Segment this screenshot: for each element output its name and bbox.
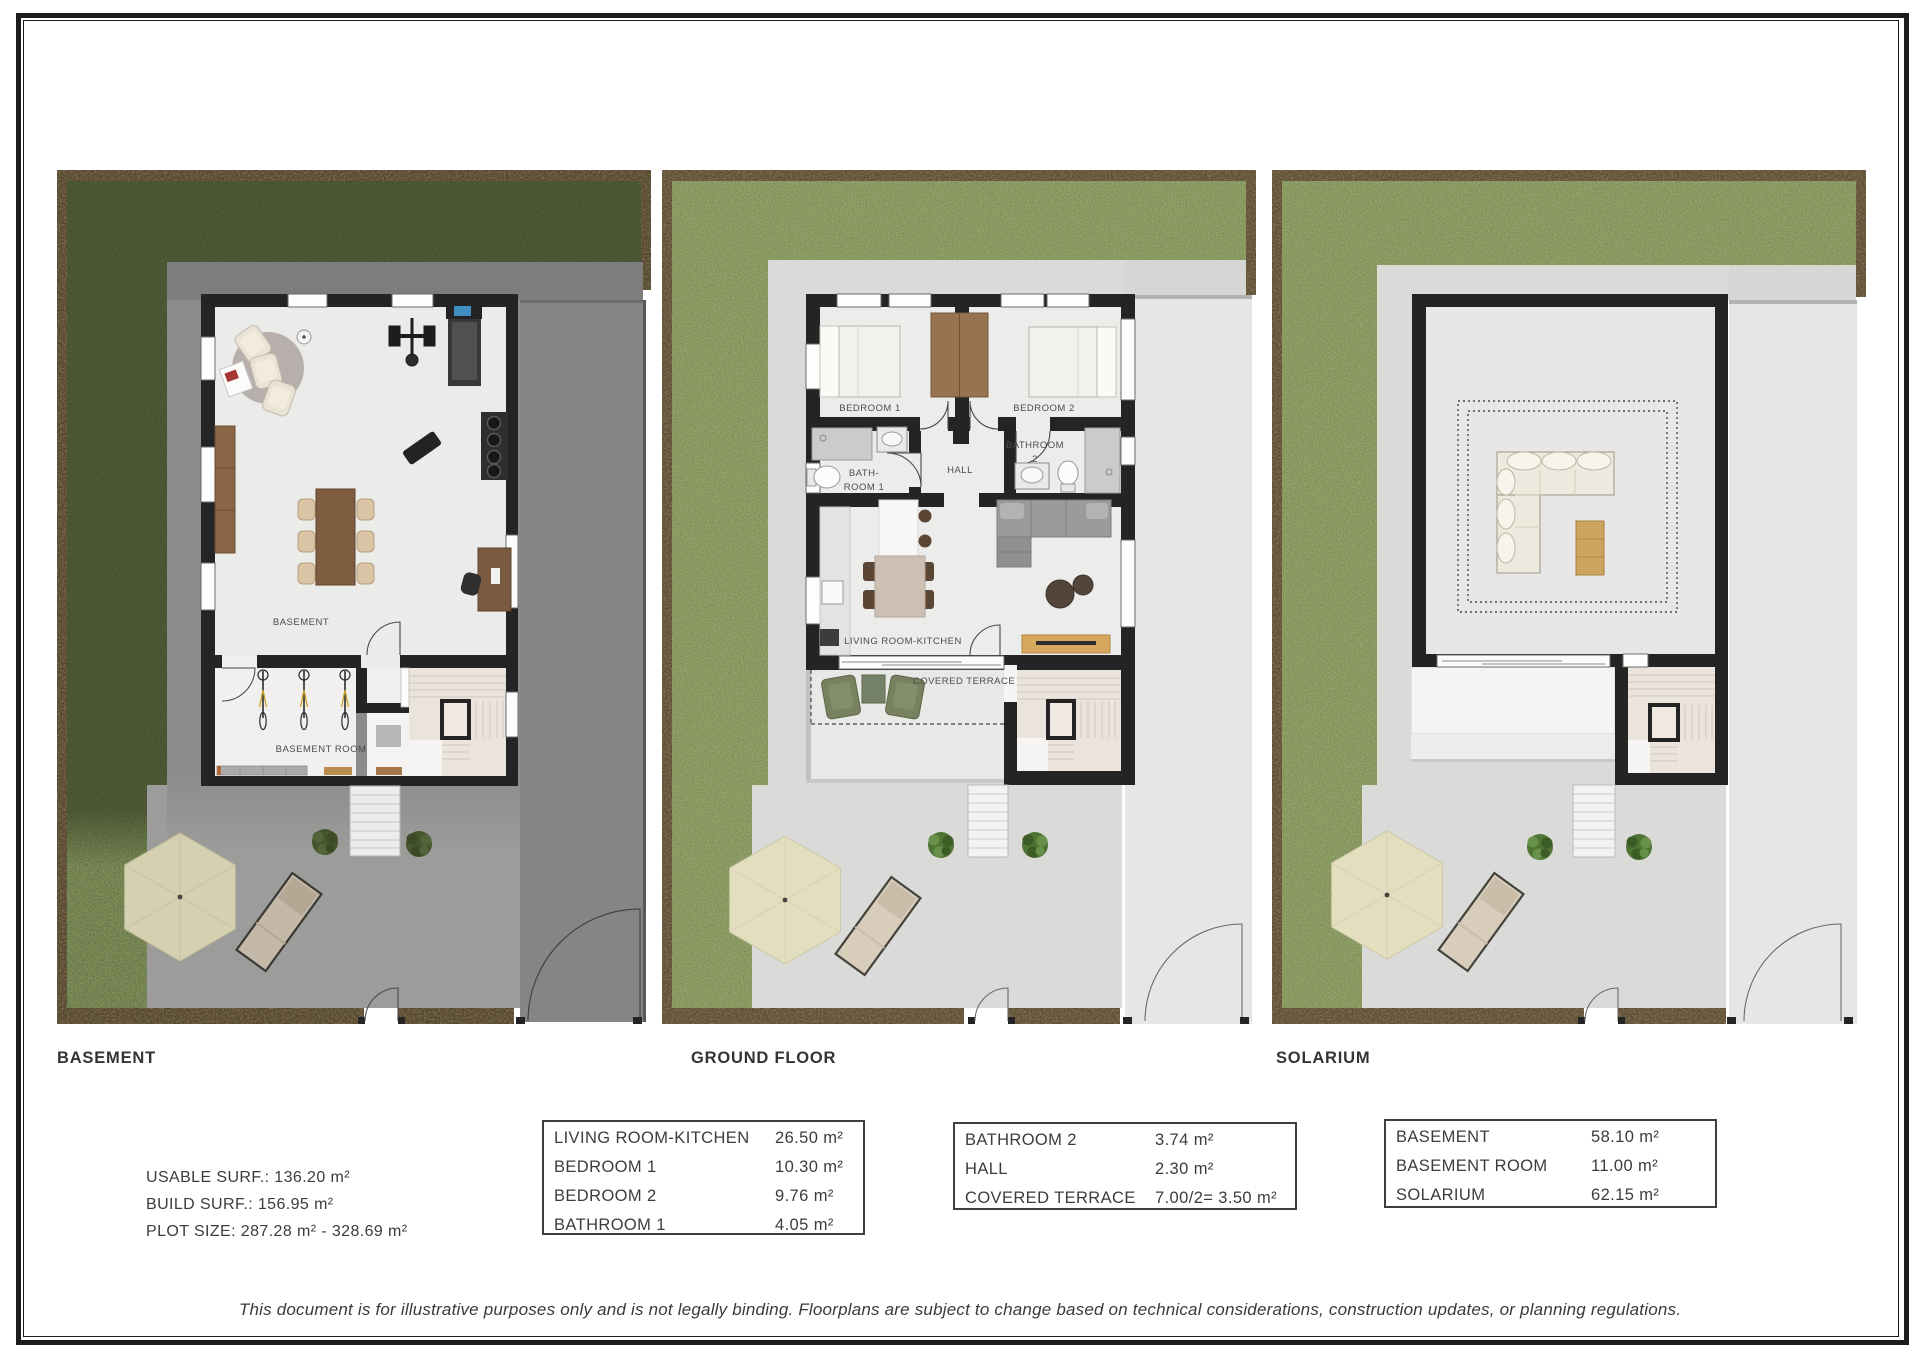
- svg-text:LIVING ROOM-KITCHEN: LIVING ROOM-KITCHEN: [844, 636, 962, 647]
- svg-text:BEDROOM 2: BEDROOM 2: [1013, 403, 1075, 414]
- svg-text:BATH-: BATH-: [849, 468, 879, 479]
- svg-text:HALL: HALL: [947, 465, 973, 476]
- svg-text:BASEMENT ROOM: BASEMENT ROOM: [276, 744, 367, 755]
- svg-text:BASEMENT: BASEMENT: [273, 617, 329, 628]
- svg-text:2: 2: [1032, 454, 1038, 465]
- svg-text:BEDROOM 1: BEDROOM 1: [839, 403, 901, 414]
- svg-text:COVERED TERRACE: COVERED TERRACE: [913, 676, 1015, 687]
- svg-text:ROOM 1: ROOM 1: [844, 482, 884, 493]
- svg-text:BATHROOM: BATHROOM: [1006, 440, 1064, 451]
